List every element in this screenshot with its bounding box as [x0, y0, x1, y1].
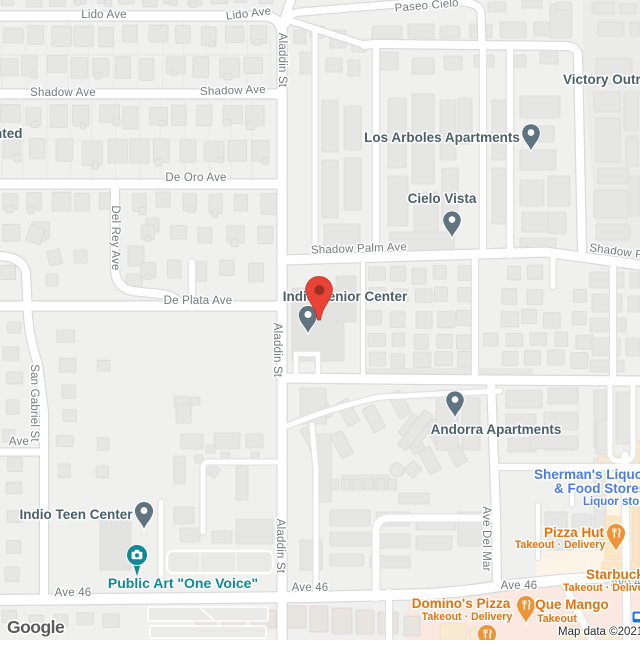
svg-text:Sherman's Liquor: Sherman's Liquor — [534, 467, 640, 482]
svg-text:Public Art "One Voice": Public Art "One Voice" — [108, 575, 258, 591]
svg-text:Starbucks: Starbucks — [586, 567, 640, 582]
svg-text:Domino's Pizza: Domino's Pizza — [412, 596, 511, 611]
svg-text:& Food Stores: & Food Stores — [554, 481, 640, 496]
svg-text:Takeout: Takeout — [537, 613, 577, 625]
svg-text:Ave 46: Ave 46 — [55, 587, 92, 599]
svg-text:tented: tented — [0, 126, 23, 141]
svg-text:Ave 46: Ave 46 — [292, 582, 329, 594]
svg-text:Del Rey Ave: Del Rey Ave — [109, 205, 121, 270]
svg-text:Takeout · Delivery: Takeout · Delivery — [422, 611, 513, 623]
svg-text:Shadow Ave: Shadow Ave — [30, 87, 96, 99]
svg-text:Google: Google — [7, 617, 65, 637]
svg-text:Takeout · Deliver: Takeout · Deliver — [563, 582, 640, 594]
svg-text:Takeout · Delivery: Takeout · Delivery — [515, 539, 606, 551]
svg-text:Ave: Ave — [9, 436, 29, 448]
svg-text:Victory Outreach: Victory Outreach — [563, 72, 640, 87]
svg-text:De Plata Ave: De Plata Ave — [164, 295, 233, 307]
svg-text:Cielo Vista: Cielo Vista — [408, 191, 477, 206]
svg-text:De Oro Ave: De Oro Ave — [165, 172, 226, 184]
svg-text:Aladdin St: Aladdin St — [276, 33, 288, 88]
svg-text:Liquor store: Liquor store — [583, 496, 640, 508]
svg-text:Pizza Hut: Pizza Hut — [544, 525, 605, 540]
svg-text:San Gabriel St: San Gabriel St — [28, 364, 40, 442]
svg-text:Que Mango: Que Mango — [535, 597, 609, 612]
svg-text:Indio Senior Center: Indio Senior Center — [283, 289, 408, 304]
svg-text:Indio Teen Center: Indio Teen Center — [19, 507, 133, 522]
svg-text:Aladdin St: Aladdin St — [274, 519, 286, 574]
svg-text:Aladdin St: Aladdin St — [271, 323, 283, 378]
svg-text:Andorra Apartments: Andorra Apartments — [431, 422, 562, 437]
svg-text:Los Arboles Apartments: Los Arboles Apartments — [364, 130, 520, 145]
svg-text:Map data ©2021: Map data ©2021 — [558, 626, 640, 638]
svg-text:Ave Del Mar: Ave Del Mar — [480, 506, 492, 571]
svg-text:Lido Ave: Lido Ave — [81, 9, 127, 21]
svg-text:Shadow Ave: Shadow Ave — [200, 84, 266, 98]
svg-text:Ave 46: Ave 46 — [501, 580, 538, 592]
